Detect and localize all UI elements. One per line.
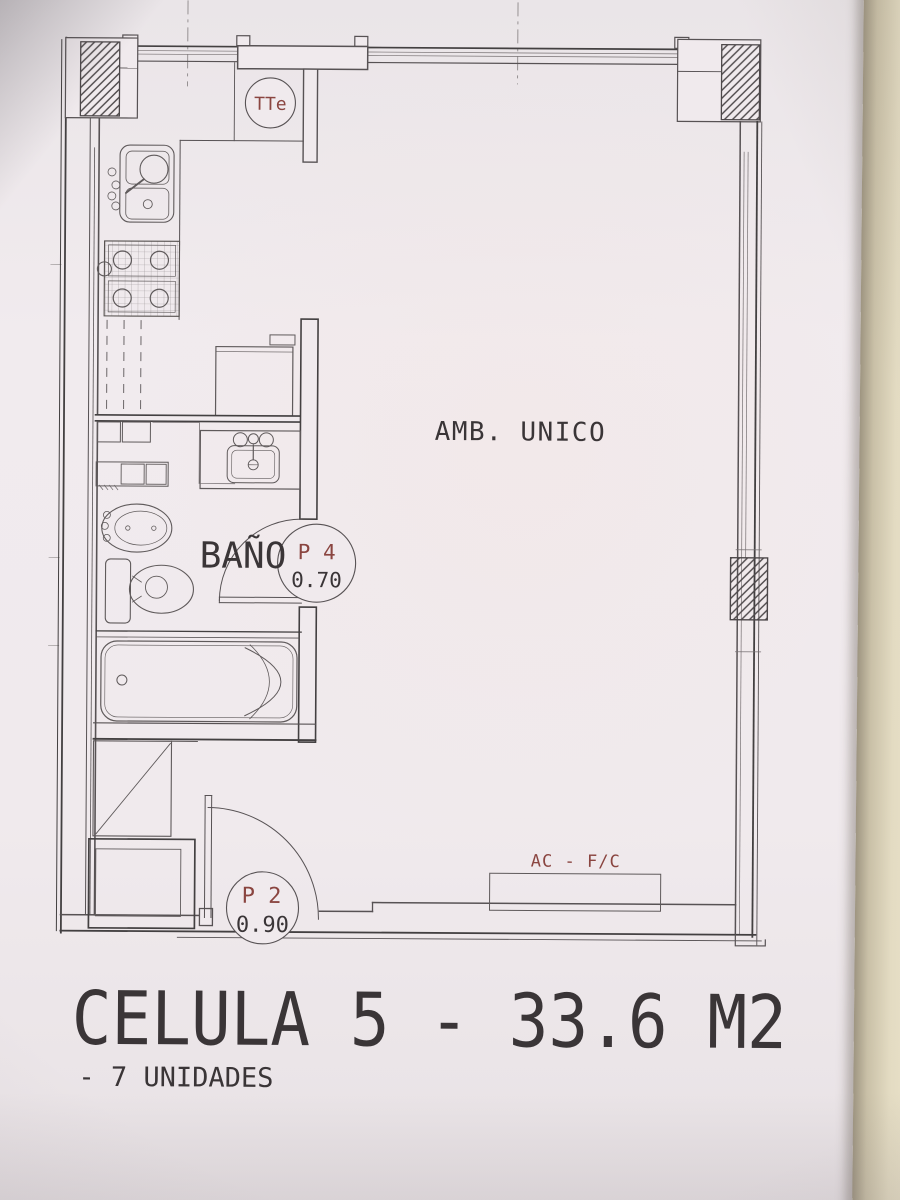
tap-knob [108,192,116,200]
wall-stub-duct [303,69,318,162]
wall-top-windows [122,34,689,164]
bathtub [94,631,317,740]
floor-plan-drawing: TTe AMB. UNICO BAÑO P 4 0.70 P 2 0.90 AC… [0,0,900,1200]
wall-right [728,122,770,945]
duct-label: TTe [254,94,287,115]
door-p2-code: P 2 [242,884,282,909]
ac-label: AC - F/C [531,852,621,873]
column-mid-right [730,558,767,620]
wall-pier [238,46,368,70]
stove [97,241,179,316]
toilet [105,559,193,624]
plan-title: CELULA 5 - 33.6 M2 [72,975,788,1066]
closet [93,741,198,837]
door-p4-code: P 4 [298,540,336,564]
appliance-space-dashed [107,320,142,413]
door-p2-width: 0.90 [236,913,289,938]
bath-cabinets [96,422,168,490]
column-top-right [677,39,760,122]
wall-bath-east-lower [299,607,317,742]
wall-kitchen-bath-divider [95,415,302,422]
main-room [489,873,660,911]
door-p4-width: 0.70 [291,568,342,592]
bathroom [94,318,319,742]
floor-plan-photo: TTe AMB. UNICO BAÑO P 4 0.70 P 2 0.90 AC… [0,0,900,1200]
refrigerator [216,335,295,416]
tap-knob [108,168,116,176]
wall-bottom [60,901,765,946]
fridge-handle [270,335,295,345]
ac-unit [489,873,660,911]
plan-subtitle: - 7 UNIDADES [78,1062,273,1094]
bathroom-vanity [200,430,300,489]
wall-bath-east-upper [300,319,318,519]
room-label-main: AMB. UNICO [435,417,607,448]
tap-knob [112,202,120,210]
room-label-bathroom: BAÑO [200,534,287,577]
tap-knob [112,181,120,189]
tub-drain [117,675,127,685]
column-top-left [65,38,137,118]
bidet [101,504,172,552]
kitchen-sink [108,145,174,222]
